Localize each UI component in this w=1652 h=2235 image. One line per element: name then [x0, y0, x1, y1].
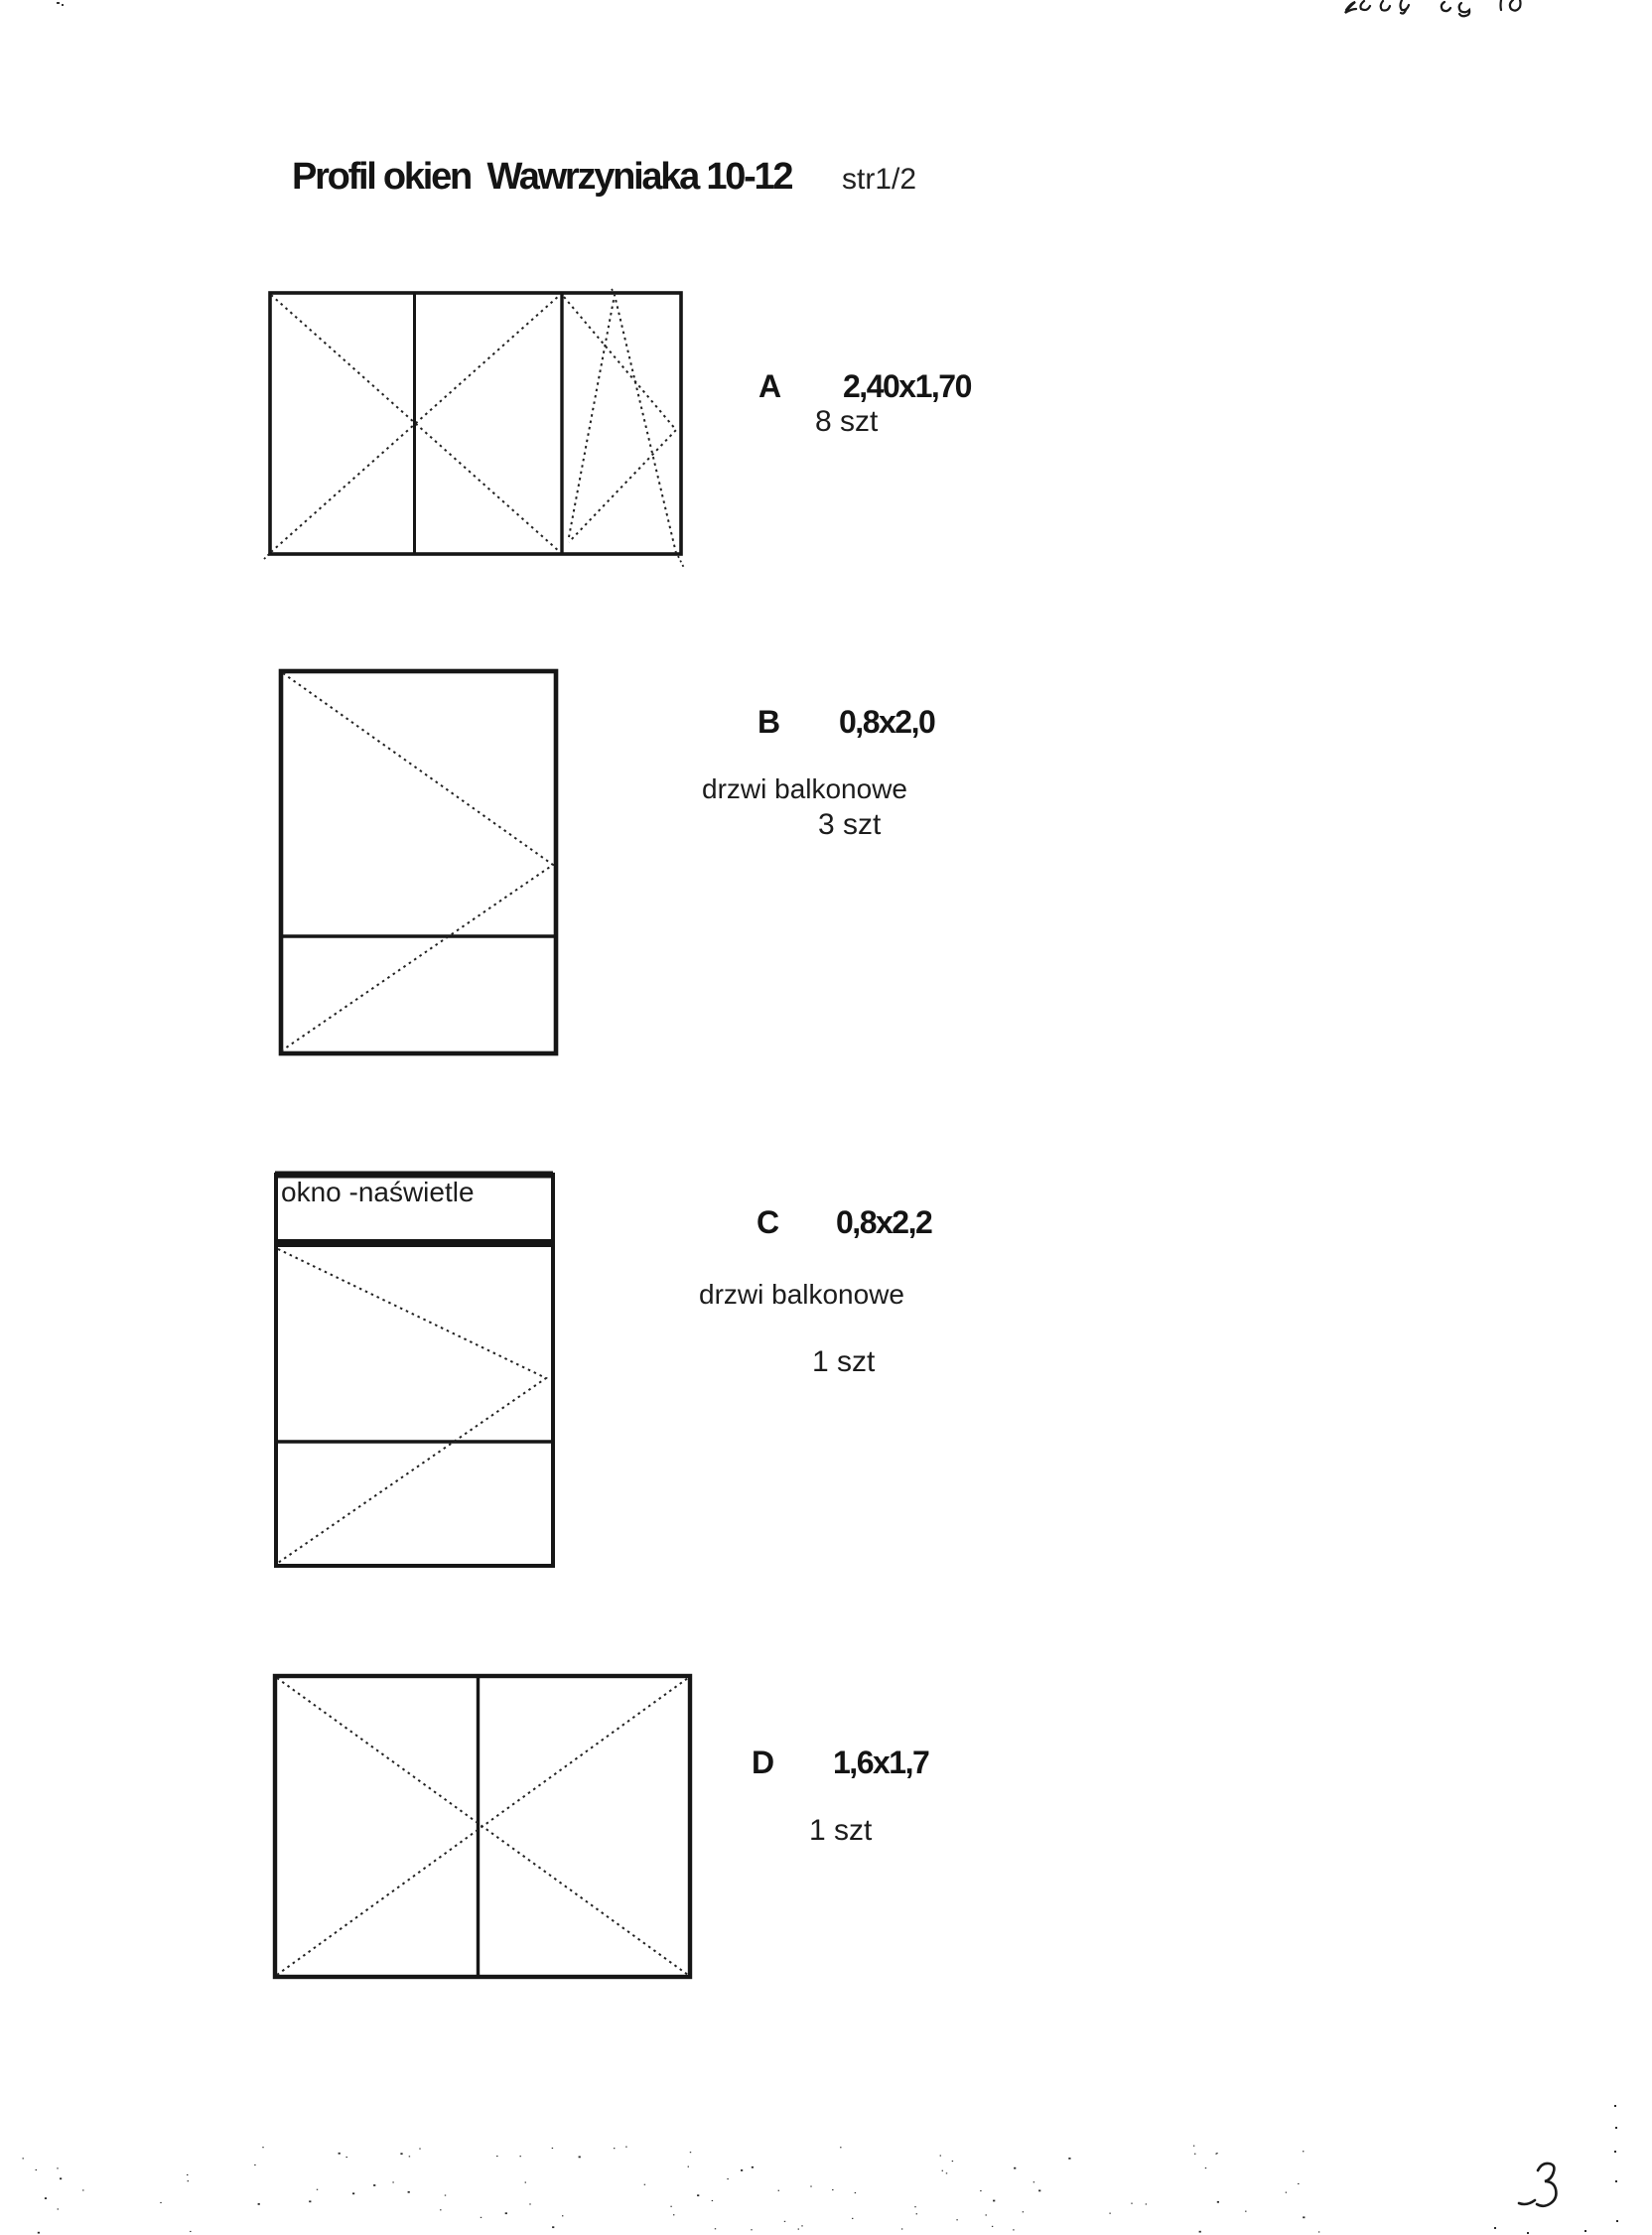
svg-text:2,40x1,70: 2,40x1,70 — [843, 368, 972, 404]
svg-text:0,8x2,0: 0,8x2,0 — [839, 704, 935, 740]
svg-text:8 szt: 8 szt — [815, 405, 879, 438]
svg-text:B: B — [757, 704, 780, 740]
svg-text:okno -naświetle: okno -naświetle — [281, 1177, 475, 1207]
svg-text:D: D — [752, 1745, 774, 1780]
svg-text:1 szt: 1 szt — [812, 1345, 876, 1378]
svg-text:1,6x1,7: 1,6x1,7 — [833, 1745, 929, 1780]
svg-text:drzwi balkonowe: drzwi balkonowe — [699, 1279, 904, 1310]
svg-text:Profil okien Wawrzyniaka 10-1: Profil okien Wawrzyniaka 10-12 — [292, 156, 792, 198]
svg-text:C: C — [757, 1204, 779, 1240]
svg-text:1 szt: 1 szt — [809, 1814, 873, 1847]
svg-text:str1/2: str1/2 — [842, 163, 916, 196]
svg-text:0,8x2,2: 0,8x2,2 — [836, 1204, 932, 1240]
svg-text:drzwi balkonowe: drzwi balkonowe — [702, 773, 907, 804]
svg-text:A: A — [758, 368, 781, 404]
svg-text:3 szt: 3 szt — [818, 808, 882, 841]
